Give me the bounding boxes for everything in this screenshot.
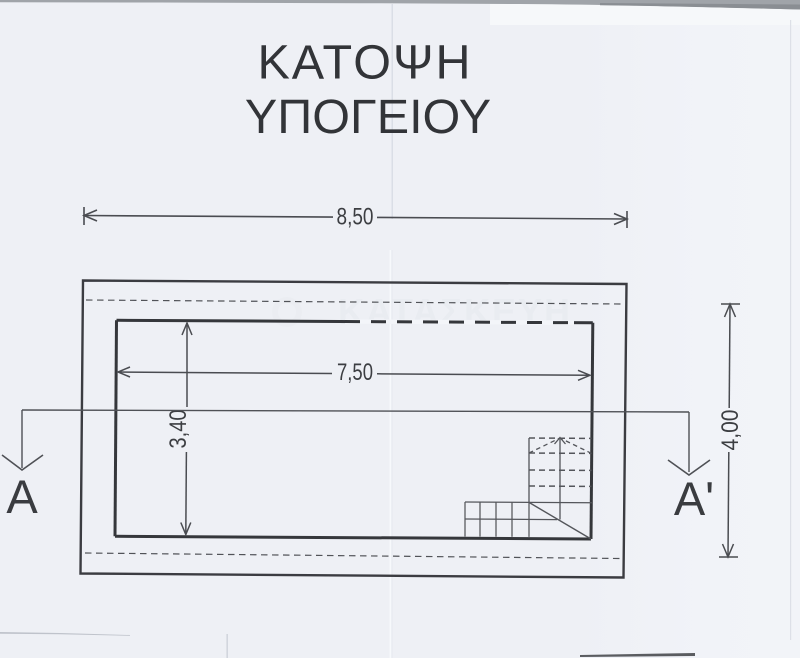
svg-text:7,50: 7,50	[337, 359, 373, 386]
svg-text:A': A'	[674, 472, 714, 525]
svg-text:A: A	[6, 470, 38, 523]
svg-text:ΚΑΤΟΨΗ: ΚΑΤΟΨΗ	[257, 36, 472, 90]
svg-text:3,40: 3,40	[165, 410, 192, 449]
svg-text:ΥΠΟΓΕΙΟΥ: ΥΠΟΓΕΙΟΥ	[245, 90, 491, 144]
svg-text:ΚΑΤΑΣΚΕΥΗ: ΚΑΤΑΣΚΕΥΗ	[338, 291, 572, 332]
svg-text:8,50: 8,50	[337, 204, 374, 231]
svg-text:4,00: 4,00	[717, 410, 744, 451]
